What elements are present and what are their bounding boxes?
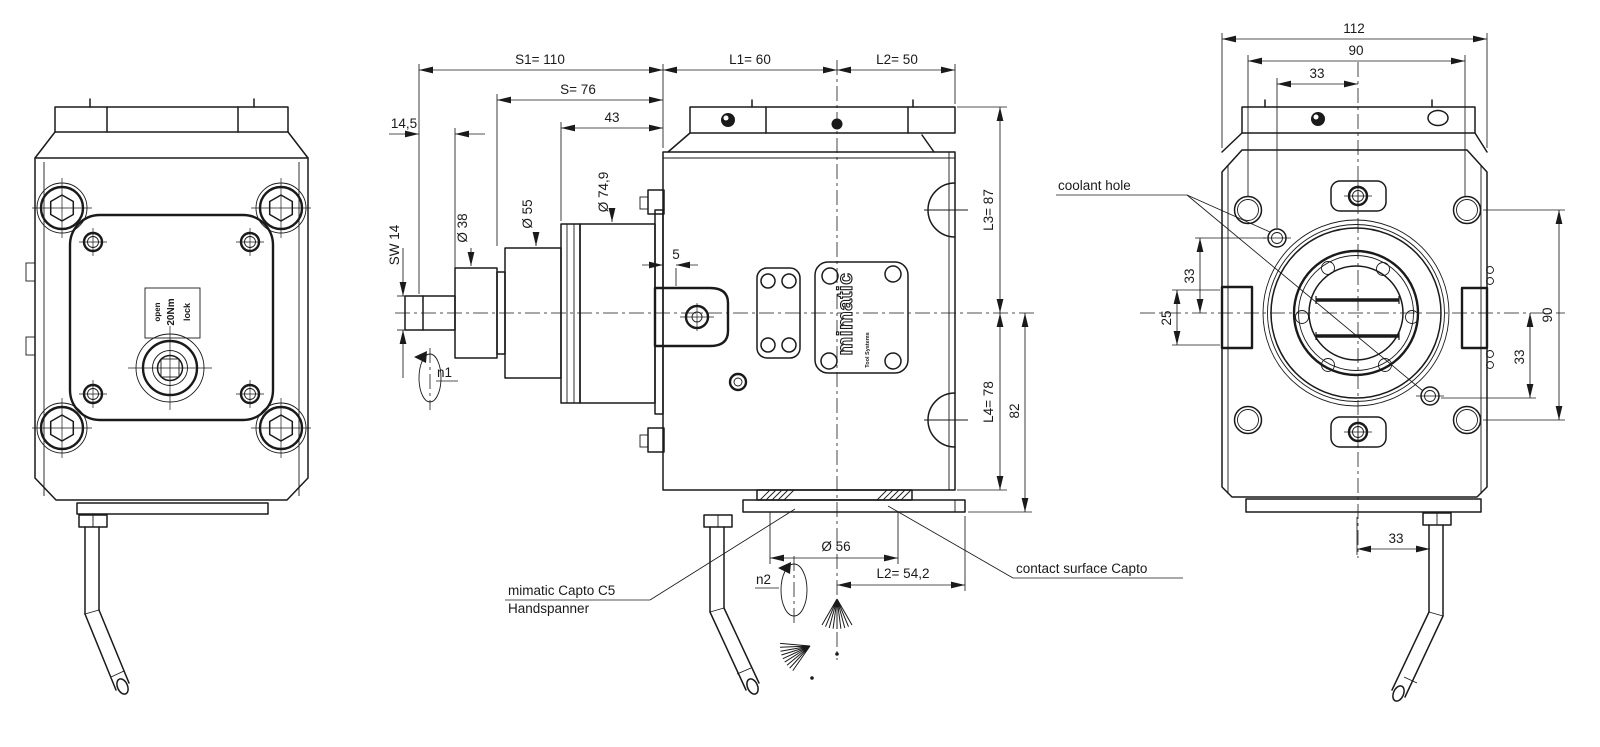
plate-screw <box>236 380 264 408</box>
gearbox-body <box>640 100 968 490</box>
dim-l2: L2= 50 <box>876 52 918 67</box>
rotation-symbol-n1: n1 <box>414 348 458 410</box>
dim-l2-capto: L2= 54,2 <box>877 566 930 581</box>
speed-label-n2: n2 <box>756 572 771 587</box>
dim-d56: Ø 56 <box>821 539 850 554</box>
clamp-handle <box>79 515 130 696</box>
side-view: mimatic Tool Systems n1 n2 <box>387 52 1183 696</box>
dim-sw14: SW 14 <box>387 224 402 265</box>
logo-subtitle: Tool Systems <box>865 332 871 367</box>
dim-43: 43 <box>604 110 619 125</box>
label-handspanner: Handspanner <box>508 601 590 616</box>
tab-screw-top <box>1331 181 1386 211</box>
tab-screw-bottom <box>1331 417 1386 447</box>
technical-drawing-page: open 20Nm lock <box>0 0 1600 747</box>
dim-82: 82 <box>1007 403 1022 418</box>
dim-33-coolant: 33 <box>1182 268 1197 283</box>
hex-bolt-bottom-right <box>251 398 311 458</box>
coolant-spray-icon <box>822 599 852 656</box>
annotation-contact-surface: contact surface Capto <box>888 506 1183 578</box>
dim-112: 112 <box>1343 21 1365 36</box>
dim-l1: L1= 60 <box>729 52 771 67</box>
coolant-hole-bottom <box>1416 387 1444 405</box>
coolant-hole-top <box>1263 229 1291 247</box>
mounting-hole <box>1235 197 1262 224</box>
clamp-handle-side <box>704 515 760 696</box>
hex-bolt-top-right <box>251 178 311 238</box>
torque-label-line3: lock <box>182 302 192 321</box>
dim-d38: Ø 38 <box>455 213 470 242</box>
mounting-hole <box>1454 197 1481 224</box>
clamp-boss <box>128 326 212 410</box>
cap-slot <box>1428 111 1448 126</box>
annotation-handspanner: mimatic Capto C5 Handspanner <box>505 509 795 616</box>
dim-33-handle: 33 <box>1388 531 1403 546</box>
side-block-left <box>1222 287 1252 348</box>
hex-bolt-top-left <box>32 178 92 238</box>
dim-l3: L3= 87 <box>981 189 996 231</box>
speed-label-n1: n1 <box>437 365 452 380</box>
capto-interface <box>743 490 965 512</box>
cap-dot <box>832 119 843 130</box>
plate-screw <box>79 228 107 256</box>
dim-90-top: 90 <box>1348 43 1363 58</box>
mounting-hole <box>1454 407 1481 434</box>
front-view: open 20Nm lock <box>26 99 311 696</box>
dimensions-rear-view: 112 90 33 33 25 90 33 33 <box>1159 21 1565 555</box>
rotation-symbol-n2: n2 <box>755 556 807 624</box>
dim-s: S= 76 <box>560 82 596 97</box>
label-contact-surface: contact surface Capto <box>1016 561 1147 576</box>
torque-label-line2: 20Nm <box>166 298 177 325</box>
dim-90-right: 90 <box>1540 307 1555 322</box>
logo-plate: mimatic Tool Systems <box>815 262 908 373</box>
plate-screw <box>236 228 264 256</box>
torque-label-plate: open 20Nm lock <box>145 288 200 338</box>
dim-5: 5 <box>672 247 680 262</box>
side-block-right <box>1462 288 1487 348</box>
cap-hole <box>1311 112 1325 126</box>
dim-s1: S1= 110 <box>515 52 565 67</box>
input-shaft <box>405 210 663 414</box>
logo-mimatic: mimatic <box>834 273 857 356</box>
torque-label-line1: open <box>153 302 162 321</box>
dim-33-right: 33 <box>1512 349 1527 364</box>
rear-body <box>1222 150 1487 497</box>
cap-hole <box>721 113 735 127</box>
dim-33-top: 33 <box>1309 66 1324 81</box>
hex-bolt-bottom-left <box>32 398 92 458</box>
dim-l4: L4= 78 <box>981 381 996 423</box>
mounting-hole <box>1235 407 1262 434</box>
dim-14-5: 14,5 <box>391 116 417 131</box>
rear-view: coolant hole 112 90 33 33 25 90 <box>1056 21 1565 703</box>
dim-25-block: 25 <box>1159 310 1174 325</box>
dim-d55: Ø 55 <box>520 199 535 228</box>
label-capto-c5: mimatic Capto C5 <box>508 583 615 598</box>
coolant-spray-icon <box>780 643 814 679</box>
clamp-bracket <box>655 288 728 346</box>
dim-d74-9: Ø 74,9 <box>596 172 611 213</box>
label-coolant-hole: coolant hole <box>1058 178 1131 193</box>
grease-nipple <box>730 374 746 390</box>
plate-screw <box>79 380 107 408</box>
